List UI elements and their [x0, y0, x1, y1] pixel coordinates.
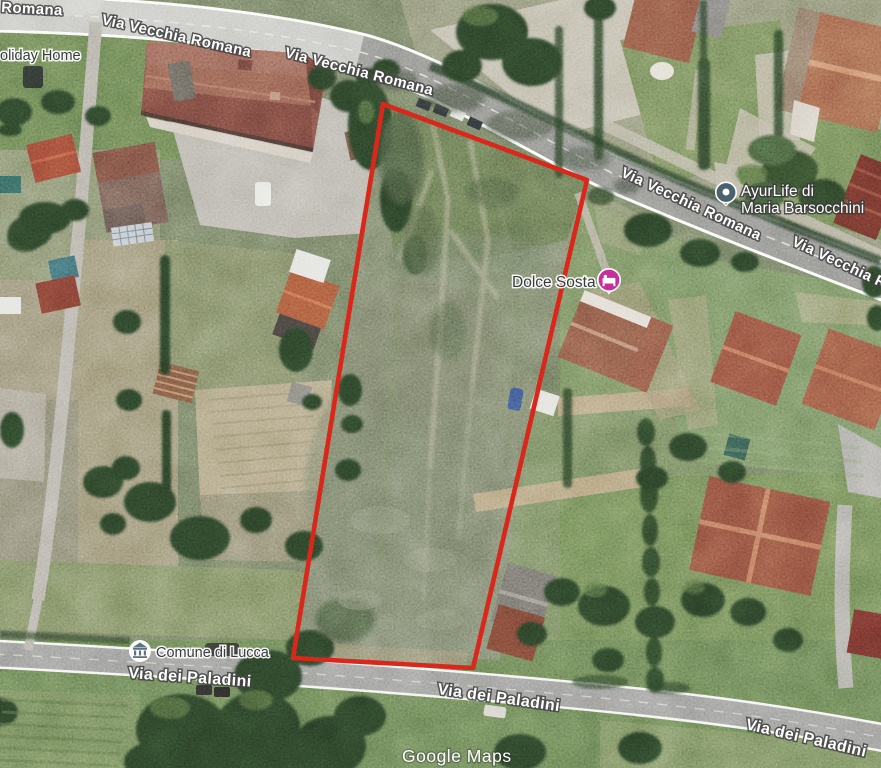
svg-text:Vecchia Romana: Vecchia Romana	[0, 0, 63, 19]
svg-text:Maria Barsocchini: Maria Barsocchini	[741, 200, 864, 217]
svg-text:Comune di Lucca: Comune di Lucca	[156, 645, 270, 661]
svg-text:AyurLife di: AyurLife di	[741, 183, 814, 200]
svg-text:oliday Home: oliday Home	[0, 48, 81, 64]
svg-text:Google Maps: Google Maps	[402, 746, 512, 766]
svg-text:Dolce Sosta: Dolce Sosta	[512, 274, 596, 291]
